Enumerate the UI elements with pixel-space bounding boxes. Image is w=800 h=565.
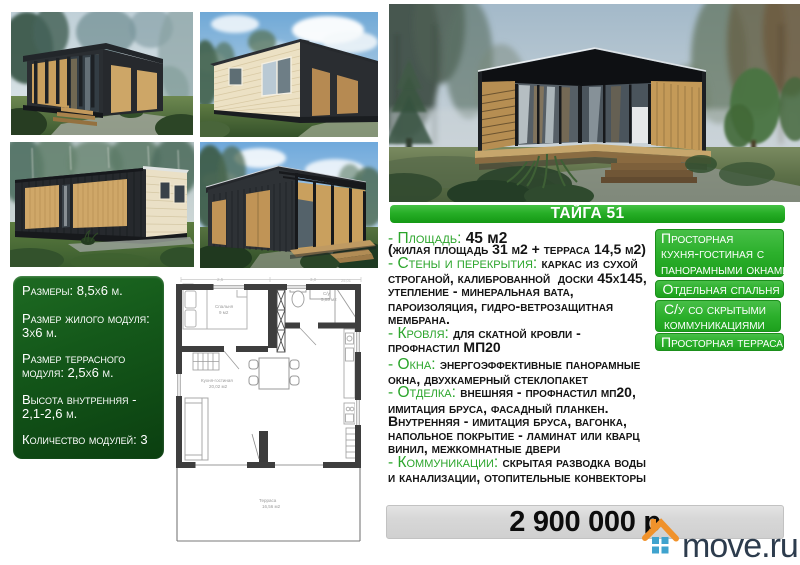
svg-text:20,02 м2: 20,02 м2 <box>209 384 228 389</box>
svg-text:Терраса: Терраса <box>259 498 277 503</box>
svg-text:16,56 м2: 16,56 м2 <box>262 504 281 509</box>
svg-text:3,0: 3,0 <box>310 277 317 282</box>
svg-text:5,05 м2: 5,05 м2 <box>321 297 337 302</box>
svg-text:2,5: 2,5 <box>217 277 224 282</box>
svg-text:Спальня: Спальня <box>215 304 234 309</box>
svg-text:25,01: 25,01 <box>341 278 352 283</box>
svg-text:Кухня-гостиная: Кухня-гостиная <box>201 378 233 383</box>
svg-text:С/у: С/у <box>323 291 331 296</box>
svg-text:9 м2: 9 м2 <box>219 310 229 315</box>
